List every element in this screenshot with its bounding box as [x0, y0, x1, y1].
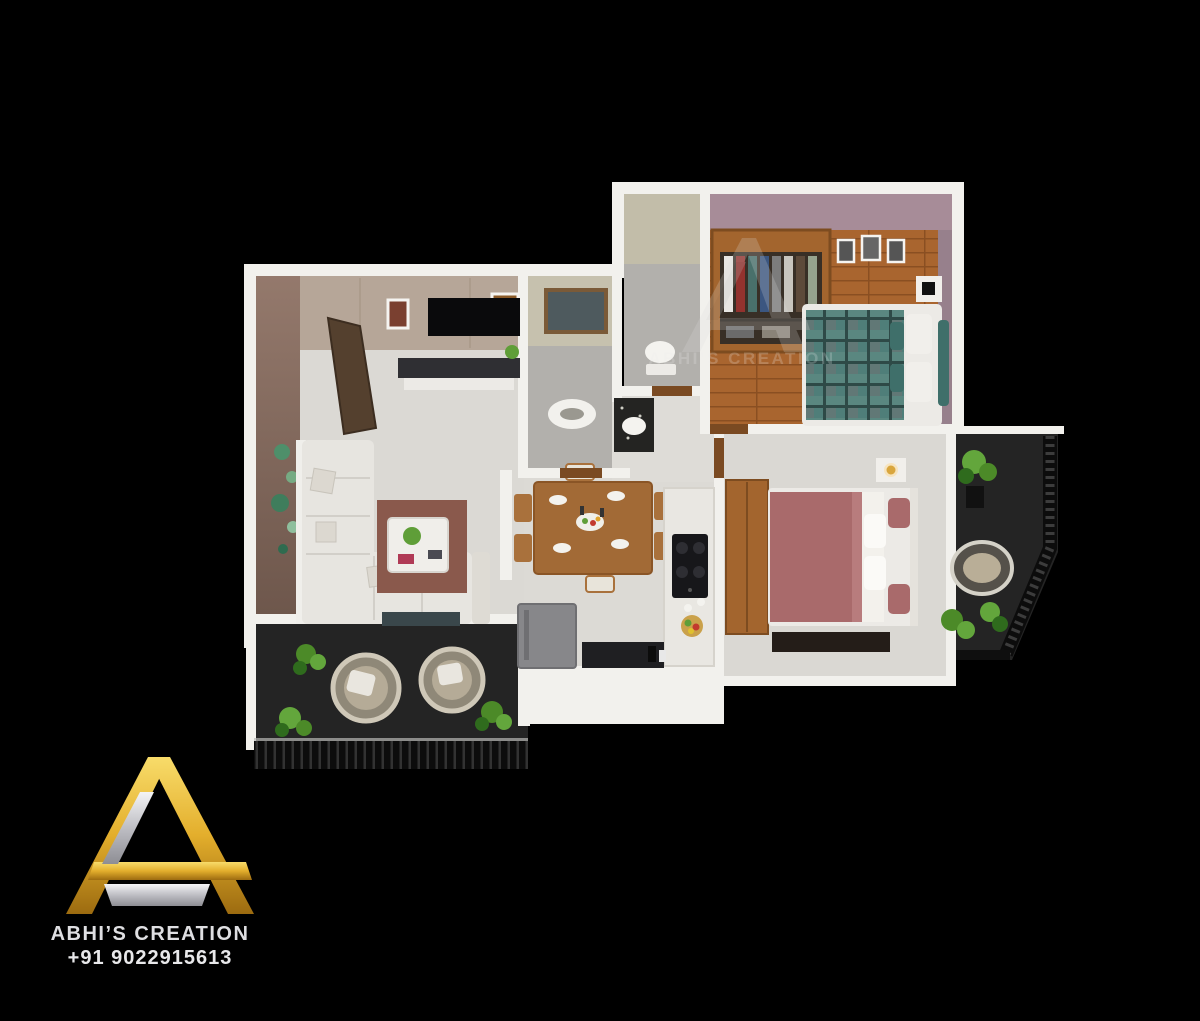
- logo-a-crossbar: [88, 862, 252, 880]
- wall-living-dining-divider: [500, 470, 512, 580]
- bathroom2-door: [652, 386, 692, 396]
- dining-chair: [514, 494, 532, 522]
- dining-area: [514, 464, 672, 592]
- wall: [612, 182, 624, 278]
- pillow: [906, 362, 932, 402]
- wall: [244, 266, 256, 648]
- wall: [952, 182, 964, 434]
- wall: [612, 182, 964, 194]
- living-left-wall-face: [256, 276, 300, 614]
- book: [428, 550, 442, 559]
- book: [398, 554, 414, 564]
- wall: [716, 676, 956, 686]
- throw-pillow: [310, 468, 335, 493]
- brand-name: ABHI’S CREATION: [51, 923, 250, 945]
- wall: [612, 276, 622, 402]
- wall: [244, 264, 624, 276]
- bathroom-window: [546, 290, 606, 332]
- accent-pillow: [890, 322, 904, 350]
- master-bedroom-door: [710, 424, 748, 434]
- bottle: [659, 650, 666, 662]
- pillow: [864, 514, 886, 548]
- brand-logo: ABHI’S CREATION +91 9022915613: [51, 757, 254, 969]
- platter: [576, 513, 604, 531]
- jar: [684, 604, 692, 612]
- wicker-chair: [333, 655, 399, 721]
- photo-frame: [922, 282, 935, 295]
- slat-railing: [254, 741, 528, 769]
- plate: [553, 543, 571, 553]
- pillow: [864, 556, 886, 590]
- bottle: [648, 646, 656, 662]
- washbasin: [622, 417, 646, 435]
- wall-art-frame: [388, 300, 408, 328]
- picture-frames: [838, 236, 904, 262]
- tv-console-top: [398, 358, 520, 378]
- rose-bed: [768, 488, 918, 626]
- table-plant: [403, 527, 421, 545]
- swing-chair: [952, 542, 1012, 594]
- bedside-lamp: [887, 466, 896, 475]
- tv-console-base: [404, 378, 514, 390]
- candle: [580, 506, 584, 515]
- coffee-table: [388, 518, 448, 572]
- tv: [428, 298, 520, 336]
- wicker-chair: [421, 649, 483, 711]
- balcony-glass-door: [382, 612, 460, 626]
- plate: [611, 539, 629, 549]
- throw-pillow: [316, 522, 336, 542]
- brand-phone: +91 9022915613: [68, 947, 233, 969]
- bedroom2-door: [714, 438, 724, 478]
- wall: [246, 614, 256, 750]
- candle: [600, 508, 604, 517]
- curtain: [938, 320, 949, 406]
- headboard: [910, 488, 918, 626]
- accent-pillow: [890, 364, 904, 392]
- plate: [607, 491, 625, 501]
- dining-chair: [586, 576, 614, 592]
- fridge-handle: [524, 610, 529, 660]
- wall-kitchen-exterior: [524, 666, 724, 724]
- plate: [549, 495, 567, 505]
- bathroom2-wall-band: [624, 194, 700, 264]
- accent-pillow: [888, 584, 910, 614]
- wall: [952, 426, 1064, 434]
- logo-a-silver-bar: [104, 884, 210, 906]
- plant-pot: [966, 486, 984, 508]
- jar: [697, 598, 705, 606]
- floor-plan-render: ABHI’S CREATION ABHI’S CREATION +91 9022…: [0, 0, 1200, 1021]
- watermark-text: ABHI’S CREATION: [648, 349, 835, 368]
- tv-console: [772, 632, 890, 652]
- accent-pillow: [888, 498, 910, 528]
- render-canvas: ABHI’S CREATION ABHI’S CREATION +91 9022…: [0, 0, 1200, 1021]
- pillow: [906, 314, 932, 354]
- plant: [505, 345, 519, 359]
- master-bedroom-wall-band: [710, 194, 952, 230]
- dining-chair: [514, 534, 532, 562]
- bathroom1-door: [560, 468, 602, 478]
